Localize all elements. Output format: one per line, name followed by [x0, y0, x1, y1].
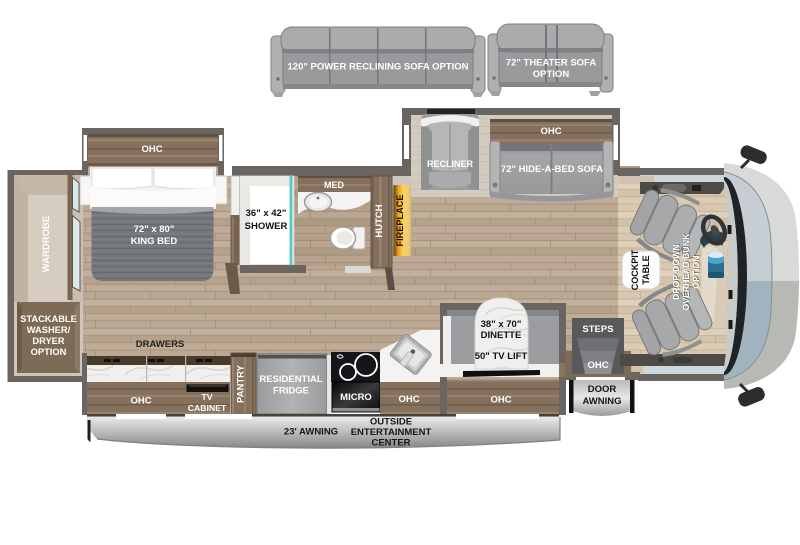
svg-text:KING BED: KING BED — [131, 236, 178, 247]
svg-text:WASHER/: WASHER/ — [27, 325, 71, 335]
svg-text:STEPS: STEPS — [582, 324, 613, 335]
svg-text:72" x 80": 72" x 80" — [134, 224, 175, 235]
svg-text:OHC: OHC — [490, 395, 511, 406]
svg-text:ENTERTAINMENT: ENTERTAINMENT — [351, 427, 432, 438]
svg-text:RECLINER: RECLINER — [427, 159, 474, 169]
svg-text:RESIDENTIAL: RESIDENTIAL — [259, 374, 323, 385]
svg-text:OPTION: OPTION — [533, 69, 570, 80]
svg-text:OVERHEAD BUNK: OVERHEAD BUNK — [681, 233, 691, 310]
svg-text:FRIDGE: FRIDGE — [273, 386, 309, 397]
svg-text:DINETTE: DINETTE — [481, 330, 522, 341]
svg-text:OHC: OHC — [130, 396, 151, 407]
svg-text:TV: TV — [201, 392, 212, 402]
svg-text:HUTCH: HUTCH — [374, 204, 385, 237]
svg-text:WARDROBE: WARDROBE — [41, 216, 52, 272]
svg-text:PANTRY: PANTRY — [236, 364, 247, 403]
svg-text:50" TV LIFT: 50" TV LIFT — [475, 351, 528, 362]
svg-text:120" POWER RECLINING SOFA OPTI: 120" POWER RECLINING SOFA OPTION — [288, 62, 469, 73]
svg-text:72" THEATER SOFA: 72" THEATER SOFA — [506, 58, 597, 69]
svg-text:OHC: OHC — [540, 126, 561, 137]
svg-text:36" x 42": 36" x 42" — [246, 208, 287, 219]
svg-text:CENTER: CENTER — [371, 438, 410, 449]
svg-text:72" HIDE-A-BED SOFA: 72" HIDE-A-BED SOFA — [501, 164, 603, 175]
svg-text:OUTSIDE: OUTSIDE — [370, 417, 412, 428]
svg-text:CABINET: CABINET — [188, 403, 227, 413]
svg-text:38" x 70": 38" x 70" — [481, 319, 522, 330]
svg-text:DOOR: DOOR — [588, 384, 617, 395]
svg-text:STACKABLE: STACKABLE — [20, 314, 77, 324]
svg-text:23' AWNING: 23' AWNING — [284, 427, 338, 438]
svg-text:MED: MED — [324, 180, 345, 190]
svg-text:OHC: OHC — [141, 144, 162, 155]
svg-text:DRYER: DRYER — [32, 336, 64, 346]
svg-text:DRAWERS: DRAWERS — [136, 339, 185, 350]
svg-text:OHC: OHC — [398, 394, 419, 405]
svg-text:SHOWER: SHOWER — [245, 221, 288, 232]
svg-text:DROP-DOWN: DROP-DOWN — [671, 244, 681, 300]
svg-text:OPTION: OPTION — [31, 347, 67, 357]
svg-text:OHC: OHC — [587, 360, 608, 371]
svg-text:OPTION: OPTION — [691, 255, 701, 288]
svg-text:MICRO: MICRO — [340, 392, 372, 403]
svg-text:AWNING: AWNING — [582, 396, 621, 407]
svg-text:TABLE: TABLE — [641, 255, 651, 284]
svg-text:COCKPIT: COCKPIT — [630, 249, 640, 290]
svg-text:FIREPLACE: FIREPLACE — [395, 194, 405, 246]
